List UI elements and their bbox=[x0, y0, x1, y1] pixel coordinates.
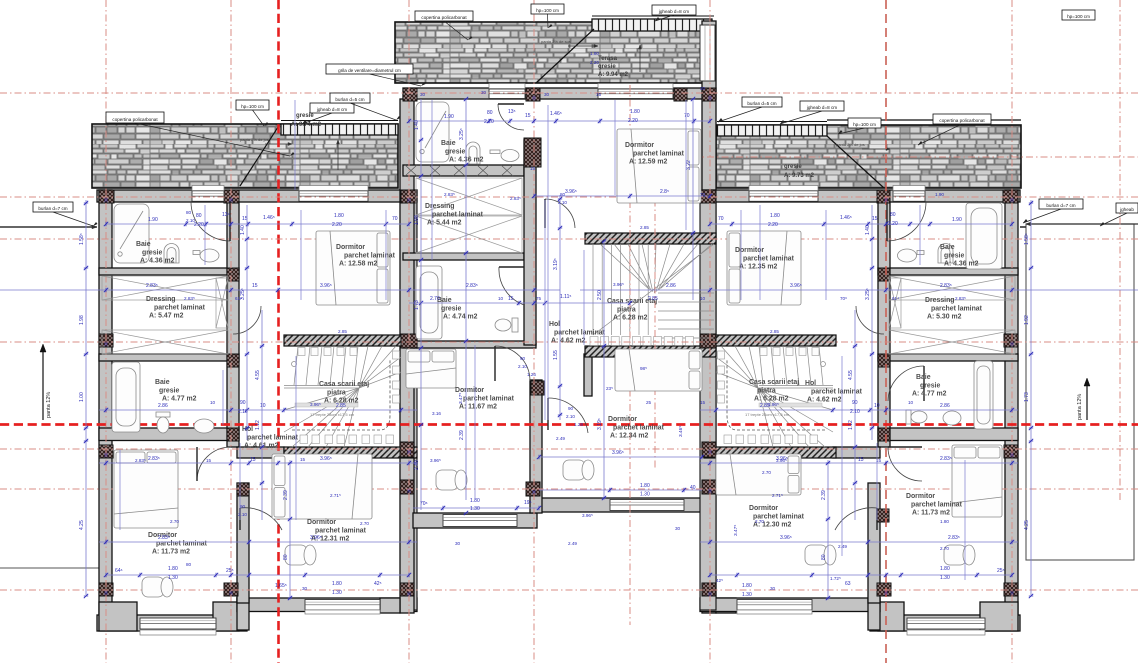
svg-text:panta 2% de jos: panta 2% de jos bbox=[240, 137, 269, 142]
svg-text:2.49: 2.49 bbox=[838, 544, 847, 549]
svg-text:15: 15 bbox=[525, 113, 531, 119]
svg-text:2.20: 2.20 bbox=[332, 222, 342, 228]
svg-text:2.70: 2.70 bbox=[360, 521, 369, 526]
svg-text:parchet laminat: parchet laminat bbox=[613, 424, 665, 431]
svg-text:1.30: 1.30 bbox=[640, 492, 650, 498]
svg-text:A: 11.73 m2: A: 11.73 m2 bbox=[912, 510, 950, 517]
svg-text:A: 4.36 m2: A: 4.36 m2 bbox=[140, 258, 175, 265]
svg-text:panta 2% de sus: panta 2% de sus bbox=[541, 39, 571, 44]
svg-text:A: 11.73 m2: A: 11.73 m2 bbox=[152, 549, 190, 556]
svg-text:4.55: 4.55 bbox=[255, 370, 261, 380]
svg-text:2.83⁵: 2.83⁵ bbox=[158, 535, 170, 541]
svg-text:parchet laminat: parchet laminat bbox=[247, 434, 299, 441]
svg-text:23⁵: 23⁵ bbox=[606, 386, 613, 391]
svg-text:3.96⁵: 3.96⁵ bbox=[320, 283, 332, 289]
svg-text:30: 30 bbox=[229, 197, 234, 202]
svg-text:10: 10 bbox=[498, 296, 504, 301]
svg-text:parchet laminat: parchet laminat bbox=[743, 255, 795, 262]
svg-text:25⁵: 25⁵ bbox=[997, 568, 1005, 574]
svg-text:Dormitor: Dormitor bbox=[749, 505, 778, 512]
svg-text:3.96⁵: 3.96⁵ bbox=[613, 282, 624, 287]
svg-text:1.90: 1.90 bbox=[935, 192, 944, 197]
svg-text:hp=100 cm: hp=100 cm bbox=[853, 122, 876, 127]
svg-text:3.96⁵: 3.96⁵ bbox=[768, 402, 779, 407]
svg-text:1.46⁵: 1.46⁵ bbox=[263, 215, 275, 221]
svg-text:13⁵: 13⁵ bbox=[508, 109, 516, 115]
svg-text:2.70: 2.70 bbox=[762, 470, 771, 475]
svg-text:30: 30 bbox=[532, 95, 537, 100]
svg-text:copertina policarbonat: copertina policarbonat bbox=[112, 117, 158, 122]
svg-text:A: 12.59 m2: A: 12.59 m2 bbox=[629, 159, 667, 166]
svg-text:64⁶: 64⁶ bbox=[115, 568, 123, 574]
svg-text:A: 4.62 m2: A: 4.62 m2 bbox=[551, 338, 586, 345]
svg-text:parchet laminat: parchet laminat bbox=[432, 211, 484, 218]
svg-text:3.47⁵: 3.47⁵ bbox=[458, 393, 464, 404]
svg-text:30: 30 bbox=[104, 452, 109, 457]
svg-text:2.10: 2.10 bbox=[566, 414, 575, 419]
svg-text:Casa scarii etaj: Casa scarii etaj bbox=[749, 379, 799, 386]
svg-text:25: 25 bbox=[646, 400, 652, 405]
svg-text:30: 30 bbox=[407, 449, 412, 454]
svg-text:30: 30 bbox=[708, 449, 713, 454]
svg-text:30: 30 bbox=[884, 590, 889, 595]
svg-text:parchet laminat: parchet laminat bbox=[554, 329, 606, 336]
svg-text:2.83⁵: 2.83⁵ bbox=[955, 296, 966, 301]
svg-text:Baie: Baie bbox=[441, 140, 456, 147]
svg-text:3.25⁵: 3.25⁵ bbox=[865, 288, 871, 300]
svg-text:A: 5.30 m2: A: 5.30 m2 bbox=[927, 314, 962, 321]
svg-text:panta 12%: panta 12% bbox=[46, 392, 52, 418]
svg-text:gresie: gresie bbox=[944, 252, 964, 259]
svg-text:1.80: 1.80 bbox=[770, 213, 780, 219]
svg-text:Dormitor: Dormitor bbox=[625, 142, 654, 149]
svg-text:30: 30 bbox=[770, 586, 776, 591]
svg-text:30: 30 bbox=[1010, 197, 1015, 202]
svg-text:2.83⁵: 2.83⁵ bbox=[184, 296, 195, 301]
svg-text:15: 15 bbox=[250, 457, 256, 463]
svg-text:1.30: 1.30 bbox=[470, 506, 480, 512]
svg-text:1.90: 1.90 bbox=[952, 217, 962, 223]
svg-text:2.83⁵: 2.83⁵ bbox=[940, 283, 952, 289]
svg-text:63: 63 bbox=[845, 581, 851, 587]
svg-text:10: 10 bbox=[210, 400, 216, 405]
svg-text:A: 12.35 m2: A: 12.35 m2 bbox=[739, 264, 777, 271]
svg-text:15: 15 bbox=[300, 457, 306, 462]
svg-text:3.19⁵: 3.19⁵ bbox=[553, 258, 559, 270]
svg-text:3.96⁵: 3.96⁵ bbox=[612, 450, 624, 456]
svg-text:A: 5.47 m2: A: 5.47 m2 bbox=[149, 313, 184, 320]
svg-text:parchet laminat: parchet laminat bbox=[911, 501, 963, 508]
svg-text:3.22: 3.22 bbox=[686, 160, 692, 170]
svg-text:90: 90 bbox=[568, 406, 574, 411]
svg-text:75: 75 bbox=[536, 296, 542, 301]
svg-text:2.20: 2.20 bbox=[484, 119, 494, 125]
svg-text:A: 4.77 m2: A: 4.77 m2 bbox=[162, 396, 197, 403]
svg-text:98⁵: 98⁵ bbox=[640, 366, 647, 371]
svg-text:jgheab d=8 cm: jgheab d=8 cm bbox=[806, 105, 837, 110]
svg-text:1.80: 1.80 bbox=[590, 51, 599, 56]
svg-text:2.20: 2.20 bbox=[768, 222, 778, 228]
svg-text:hp=100 cm: hp=100 cm bbox=[536, 8, 559, 13]
svg-text:80: 80 bbox=[821, 554, 827, 560]
svg-text:25⁵: 25⁵ bbox=[226, 568, 234, 574]
svg-text:1.80: 1.80 bbox=[742, 583, 752, 589]
svg-text:1.11⁵: 1.11⁵ bbox=[560, 294, 571, 300]
svg-text:gresie: gresie bbox=[296, 113, 314, 119]
svg-text:jgheab: jgheab bbox=[1119, 207, 1134, 212]
svg-text:Baie: Baie bbox=[916, 374, 931, 381]
svg-text:4.25: 4.25 bbox=[1024, 520, 1030, 530]
svg-text:burlan d=7 cm: burlan d=7 cm bbox=[38, 206, 67, 211]
svg-text:42⁵: 42⁵ bbox=[716, 578, 723, 583]
svg-text:2.83⁵: 2.83⁵ bbox=[146, 283, 158, 289]
svg-text:A: 9.74 m2: A: 9.74 m2 bbox=[291, 122, 322, 128]
svg-text:parchet laminat: parchet laminat bbox=[344, 252, 396, 259]
svg-text:1.92: 1.92 bbox=[1024, 315, 1030, 325]
svg-text:2.50: 2.50 bbox=[597, 290, 603, 300]
svg-text:1.26: 1.26 bbox=[527, 372, 536, 377]
svg-text:1.80: 1.80 bbox=[630, 109, 640, 115]
svg-text:80: 80 bbox=[890, 212, 896, 218]
svg-text:1.98: 1.98 bbox=[414, 215, 420, 225]
svg-text:1.46⁵: 1.46⁵ bbox=[550, 111, 562, 117]
svg-text:2.86: 2.86 bbox=[940, 403, 950, 409]
svg-text:13⁴: 13⁴ bbox=[222, 212, 230, 218]
svg-text:gresie: gresie bbox=[159, 387, 179, 394]
svg-text:30: 30 bbox=[700, 86, 706, 91]
svg-text:Dressing: Dressing bbox=[425, 203, 455, 210]
svg-text:grila de ventilare=diametrul c: grila de ventilare=diametrul cm bbox=[338, 68, 401, 73]
svg-text:piatra: piatra bbox=[757, 387, 776, 394]
svg-text:1.90: 1.90 bbox=[444, 114, 454, 120]
svg-text:10: 10 bbox=[908, 400, 914, 405]
svg-text:1.72⁵: 1.72⁵ bbox=[830, 576, 841, 581]
svg-text:1.40: 1.40 bbox=[414, 120, 420, 130]
svg-text:80: 80 bbox=[560, 192, 566, 197]
svg-text:Dormitor: Dormitor bbox=[336, 244, 365, 251]
svg-text:A: 4.74 m2: A: 4.74 m2 bbox=[443, 314, 478, 321]
svg-text:80: 80 bbox=[196, 213, 202, 219]
svg-text:2.20: 2.20 bbox=[628, 118, 638, 124]
svg-text:2.83⁵: 2.83⁵ bbox=[510, 196, 521, 201]
svg-text:70: 70 bbox=[718, 216, 724, 222]
svg-text:A: 4.36 m2: A: 4.36 m2 bbox=[944, 261, 979, 268]
svg-text:2.85: 2.85 bbox=[338, 329, 347, 334]
svg-text:Casa scarii etaj: Casa scarii etaj bbox=[319, 381, 369, 388]
svg-text:jgheab d=8 cm: jgheab d=8 cm bbox=[658, 9, 689, 14]
svg-text:Terasa: Terasa bbox=[598, 56, 618, 62]
svg-text:90: 90 bbox=[520, 356, 526, 361]
svg-text:61⁴: 61⁴ bbox=[892, 296, 899, 301]
svg-text:burlan d=5 cm: burlan d=5 cm bbox=[747, 101, 776, 106]
svg-text:40: 40 bbox=[690, 485, 696, 491]
svg-text:3.96⁵: 3.96⁵ bbox=[780, 535, 792, 541]
svg-text:Baie: Baie bbox=[136, 241, 151, 248]
svg-text:2.70: 2.70 bbox=[940, 546, 949, 551]
svg-text:burlan d=5 cm: burlan d=5 cm bbox=[335, 97, 364, 102]
svg-text:80: 80 bbox=[283, 554, 289, 560]
svg-text:61⁴: 61⁴ bbox=[235, 296, 242, 301]
svg-text:30: 30 bbox=[407, 197, 412, 202]
svg-text:Dormitor: Dormitor bbox=[307, 519, 336, 526]
svg-text:3.96⁵: 3.96⁵ bbox=[582, 513, 593, 518]
svg-text:4.55: 4.55 bbox=[848, 370, 854, 380]
svg-text:70⁶: 70⁶ bbox=[840, 296, 847, 301]
svg-text:Dormitor: Dormitor bbox=[906, 493, 935, 500]
svg-text:1.30: 1.30 bbox=[332, 590, 342, 596]
svg-text:1.80: 1.80 bbox=[940, 519, 949, 524]
svg-text:17 trepte 28cm x17,5 cm: 17 trepte 28cm x17,5 cm bbox=[310, 412, 355, 417]
svg-text:gresie: gresie bbox=[441, 305, 461, 312]
svg-text:80: 80 bbox=[186, 562, 192, 567]
svg-text:2.71⁵: 2.71⁵ bbox=[772, 493, 783, 498]
svg-text:70: 70 bbox=[700, 192, 706, 197]
svg-text:90: 90 bbox=[240, 400, 246, 406]
svg-text:A: 12.58 m2: A: 12.58 m2 bbox=[339, 261, 377, 268]
svg-text:2.86: 2.86 bbox=[158, 403, 168, 409]
svg-text:2.10: 2.10 bbox=[238, 409, 248, 415]
svg-text:Dormitor: Dormitor bbox=[608, 416, 637, 423]
svg-text:2.39: 2.39 bbox=[459, 430, 465, 440]
svg-text:gresie: gresie bbox=[784, 164, 802, 170]
svg-text:burlan d=7 cm: burlan d=7 cm bbox=[1046, 203, 1075, 208]
svg-text:3.47⁵: 3.47⁵ bbox=[733, 525, 739, 536]
svg-text:30: 30 bbox=[1010, 452, 1015, 457]
svg-text:15: 15 bbox=[530, 166, 536, 171]
svg-text:30: 30 bbox=[302, 586, 308, 591]
svg-text:2.49: 2.49 bbox=[568, 541, 577, 546]
svg-text:2.20: 2.20 bbox=[194, 222, 204, 228]
svg-text:30: 30 bbox=[104, 341, 109, 346]
svg-text:gresie: gresie bbox=[142, 249, 162, 256]
svg-text:2.49: 2.49 bbox=[556, 436, 565, 441]
svg-text:A: 4.62 m2: A: 4.62 m2 bbox=[807, 397, 842, 404]
svg-text:1.73: 1.73 bbox=[1024, 392, 1030, 402]
svg-text:copertina policarbonat: copertina policarbonat bbox=[939, 118, 985, 123]
svg-text:3.16: 3.16 bbox=[432, 411, 441, 416]
svg-text:30: 30 bbox=[708, 591, 713, 596]
svg-text:30: 30 bbox=[544, 92, 550, 97]
svg-text:19⁶: 19⁶ bbox=[524, 500, 532, 506]
svg-text:1.80: 1.80 bbox=[640, 483, 650, 489]
svg-text:10: 10 bbox=[700, 296, 706, 301]
svg-text:3.96⁵: 3.96⁵ bbox=[320, 456, 332, 462]
svg-text:70: 70 bbox=[684, 113, 690, 119]
svg-text:2.83⁵: 2.83⁵ bbox=[148, 456, 160, 462]
svg-text:1.55: 1.55 bbox=[553, 350, 559, 360]
svg-text:2.10: 2.10 bbox=[518, 364, 527, 369]
svg-text:17 trepte 28cm x17,5 cm: 17 trepte 28cm x17,5 cm bbox=[745, 412, 790, 417]
svg-text:copertina policarbonat: copertina policarbonat bbox=[421, 15, 467, 20]
svg-text:1.65⁵: 1.65⁵ bbox=[275, 583, 287, 589]
svg-text:15: 15 bbox=[508, 296, 514, 302]
svg-text:2.10: 2.10 bbox=[558, 200, 567, 205]
svg-text:1.80: 1.80 bbox=[332, 581, 342, 587]
svg-text:2.20: 2.20 bbox=[888, 221, 898, 227]
svg-text:15: 15 bbox=[596, 92, 602, 97]
svg-text:A: 4.77 m2: A: 4.77 m2 bbox=[912, 391, 947, 398]
svg-text:2.83⁵: 2.83⁵ bbox=[940, 456, 952, 462]
svg-text:30: 30 bbox=[104, 197, 109, 202]
svg-text:70: 70 bbox=[392, 216, 398, 222]
svg-text:2.49: 2.49 bbox=[414, 460, 420, 470]
svg-text:30: 30 bbox=[455, 541, 461, 546]
svg-text:A: 12.34 m2: A: 12.34 m2 bbox=[610, 433, 648, 440]
svg-text:1.73: 1.73 bbox=[414, 300, 420, 310]
svg-text:15: 15 bbox=[252, 283, 258, 289]
svg-text:1.40: 1.40 bbox=[240, 225, 246, 235]
svg-text:2.85: 2.85 bbox=[640, 225, 649, 230]
svg-text:4.25: 4.25 bbox=[79, 520, 85, 530]
svg-text:2.85: 2.85 bbox=[770, 329, 779, 334]
svg-text:3.96⁵: 3.96⁵ bbox=[776, 458, 787, 463]
svg-text:A: 4.61 m2: A: 4.61 m2 bbox=[244, 443, 279, 450]
svg-text:1.80: 1.80 bbox=[334, 213, 344, 219]
svg-text:2.39: 2.39 bbox=[283, 490, 289, 500]
svg-text:30: 30 bbox=[1010, 341, 1015, 346]
svg-text:1.12: 1.12 bbox=[848, 420, 854, 430]
svg-text:panta 2% de jos: panta 2% de jos bbox=[836, 142, 865, 147]
svg-text:A: 9.73 m2: A: 9.73 m2 bbox=[784, 173, 815, 179]
svg-text:A: 6.28 m2: A: 6.28 m2 bbox=[613, 315, 648, 322]
svg-text:2.83⁵: 2.83⁵ bbox=[466, 283, 478, 289]
svg-text:1.00: 1.00 bbox=[79, 392, 85, 402]
svg-text:2.39: 2.39 bbox=[821, 490, 827, 500]
svg-text:3.19⁵: 3.19⁵ bbox=[597, 418, 603, 430]
svg-text:30: 30 bbox=[229, 590, 234, 595]
svg-text:1.46⁵: 1.46⁵ bbox=[840, 215, 852, 221]
svg-text:3.46⁵: 3.46⁵ bbox=[678, 426, 684, 437]
svg-text:2.83⁵: 2.83⁵ bbox=[135, 458, 146, 463]
svg-text:3.96⁵: 3.96⁵ bbox=[430, 458, 441, 463]
svg-text:1.30: 1.30 bbox=[168, 575, 178, 581]
svg-text:10: 10 bbox=[874, 403, 880, 409]
svg-text:2.85: 2.85 bbox=[648, 296, 658, 302]
svg-text:piatra: piatra bbox=[617, 306, 636, 313]
svg-text:80: 80 bbox=[186, 210, 192, 215]
svg-text:parchet laminat: parchet laminat bbox=[931, 305, 983, 312]
svg-text:30: 30 bbox=[481, 90, 487, 95]
svg-text:jgheab d=8 cm: jgheab d=8 cm bbox=[316, 107, 347, 112]
svg-text:parchet laminat: parchet laminat bbox=[633, 150, 685, 157]
svg-text:42⁵: 42⁵ bbox=[374, 581, 382, 587]
svg-text:2.71⁵: 2.71⁵ bbox=[330, 493, 341, 498]
svg-text:10: 10 bbox=[260, 403, 266, 409]
svg-text:90: 90 bbox=[240, 504, 246, 509]
svg-text:30: 30 bbox=[884, 197, 889, 202]
svg-text:gresie: gresie bbox=[598, 64, 616, 70]
svg-text:hp=100 cm: hp=100 cm bbox=[241, 104, 264, 109]
svg-text:parchet laminat: parchet laminat bbox=[463, 395, 515, 402]
svg-text:Baie: Baie bbox=[155, 379, 170, 386]
svg-text:1.98: 1.98 bbox=[79, 315, 85, 325]
svg-text:30: 30 bbox=[104, 590, 109, 595]
svg-text:15: 15 bbox=[872, 216, 878, 222]
svg-text:1.40: 1.40 bbox=[865, 225, 871, 235]
svg-text:parchet laminat: parchet laminat bbox=[315, 527, 367, 534]
svg-text:30: 30 bbox=[1010, 590, 1015, 595]
svg-text:2.70: 2.70 bbox=[430, 296, 440, 302]
svg-text:1.90: 1.90 bbox=[148, 217, 158, 223]
svg-text:30: 30 bbox=[708, 488, 713, 493]
svg-text:2.83⁵: 2.83⁵ bbox=[444, 192, 455, 197]
svg-text:1.80: 1.80 bbox=[168, 566, 178, 572]
svg-text:3.96⁵: 3.96⁵ bbox=[310, 402, 321, 407]
svg-text:Hol: Hol bbox=[805, 380, 816, 387]
svg-text:Baie: Baie bbox=[940, 244, 955, 251]
svg-text:30: 30 bbox=[675, 526, 681, 531]
svg-text:parchet laminat: parchet laminat bbox=[154, 304, 206, 311]
svg-text:30: 30 bbox=[420, 92, 426, 97]
svg-text:Dressing: Dressing bbox=[925, 297, 955, 304]
svg-text:1.30: 1.30 bbox=[742, 592, 752, 598]
svg-text:A: 9.94 m2: A: 9.94 m2 bbox=[598, 72, 629, 78]
svg-text:2.83⁵: 2.83⁵ bbox=[948, 535, 960, 541]
svg-text:30: 30 bbox=[407, 488, 412, 493]
svg-text:30: 30 bbox=[532, 489, 537, 494]
svg-text:15: 15 bbox=[206, 458, 212, 463]
svg-text:80: 80 bbox=[487, 110, 493, 116]
svg-text:2.70: 2.70 bbox=[170, 519, 179, 524]
svg-text:30: 30 bbox=[708, 95, 713, 100]
svg-text:2.85: 2.85 bbox=[336, 403, 346, 409]
svg-text:15: 15 bbox=[858, 457, 864, 463]
svg-text:1.28: 1.28 bbox=[574, 422, 583, 427]
svg-text:1.58⁵: 1.58⁵ bbox=[79, 233, 85, 245]
svg-text:gresie: gresie bbox=[920, 382, 940, 389]
svg-text:30: 30 bbox=[407, 591, 412, 596]
svg-text:parchet laminat: parchet laminat bbox=[156, 540, 208, 547]
svg-text:piatra: piatra bbox=[327, 389, 346, 396]
svg-text:2.10: 2.10 bbox=[238, 512, 247, 517]
svg-text:3.96⁵: 3.96⁵ bbox=[310, 535, 322, 541]
svg-text:1.58⁵: 1.58⁵ bbox=[1024, 233, 1030, 245]
svg-text:gresie: gresie bbox=[445, 148, 465, 155]
svg-text:Dressing: Dressing bbox=[146, 296, 176, 303]
svg-text:3.96⁵: 3.96⁵ bbox=[565, 189, 577, 195]
svg-text:2.70: 2.70 bbox=[755, 519, 764, 524]
svg-text:2.20: 2.20 bbox=[590, 60, 599, 65]
svg-text:1.12: 1.12 bbox=[255, 420, 261, 430]
svg-text:panta 12%: panta 12% bbox=[1077, 394, 1083, 420]
svg-text:3.25⁵: 3.25⁵ bbox=[459, 128, 465, 140]
svg-text:Hol: Hol bbox=[549, 321, 560, 328]
svg-text:3.96⁵: 3.96⁵ bbox=[790, 283, 802, 289]
svg-text:1.80: 1.80 bbox=[940, 566, 950, 572]
svg-text:hp=100 cm: hp=100 cm bbox=[1067, 14, 1090, 19]
svg-text:1.30: 1.30 bbox=[940, 575, 950, 581]
svg-text:2.86: 2.86 bbox=[666, 283, 676, 289]
svg-text:15: 15 bbox=[700, 400, 706, 405]
svg-text:2.10: 2.10 bbox=[186, 218, 195, 223]
svg-text:2.8⁵: 2.8⁵ bbox=[660, 189, 669, 195]
svg-text:A: 11.67 m2: A: 11.67 m2 bbox=[459, 404, 497, 411]
